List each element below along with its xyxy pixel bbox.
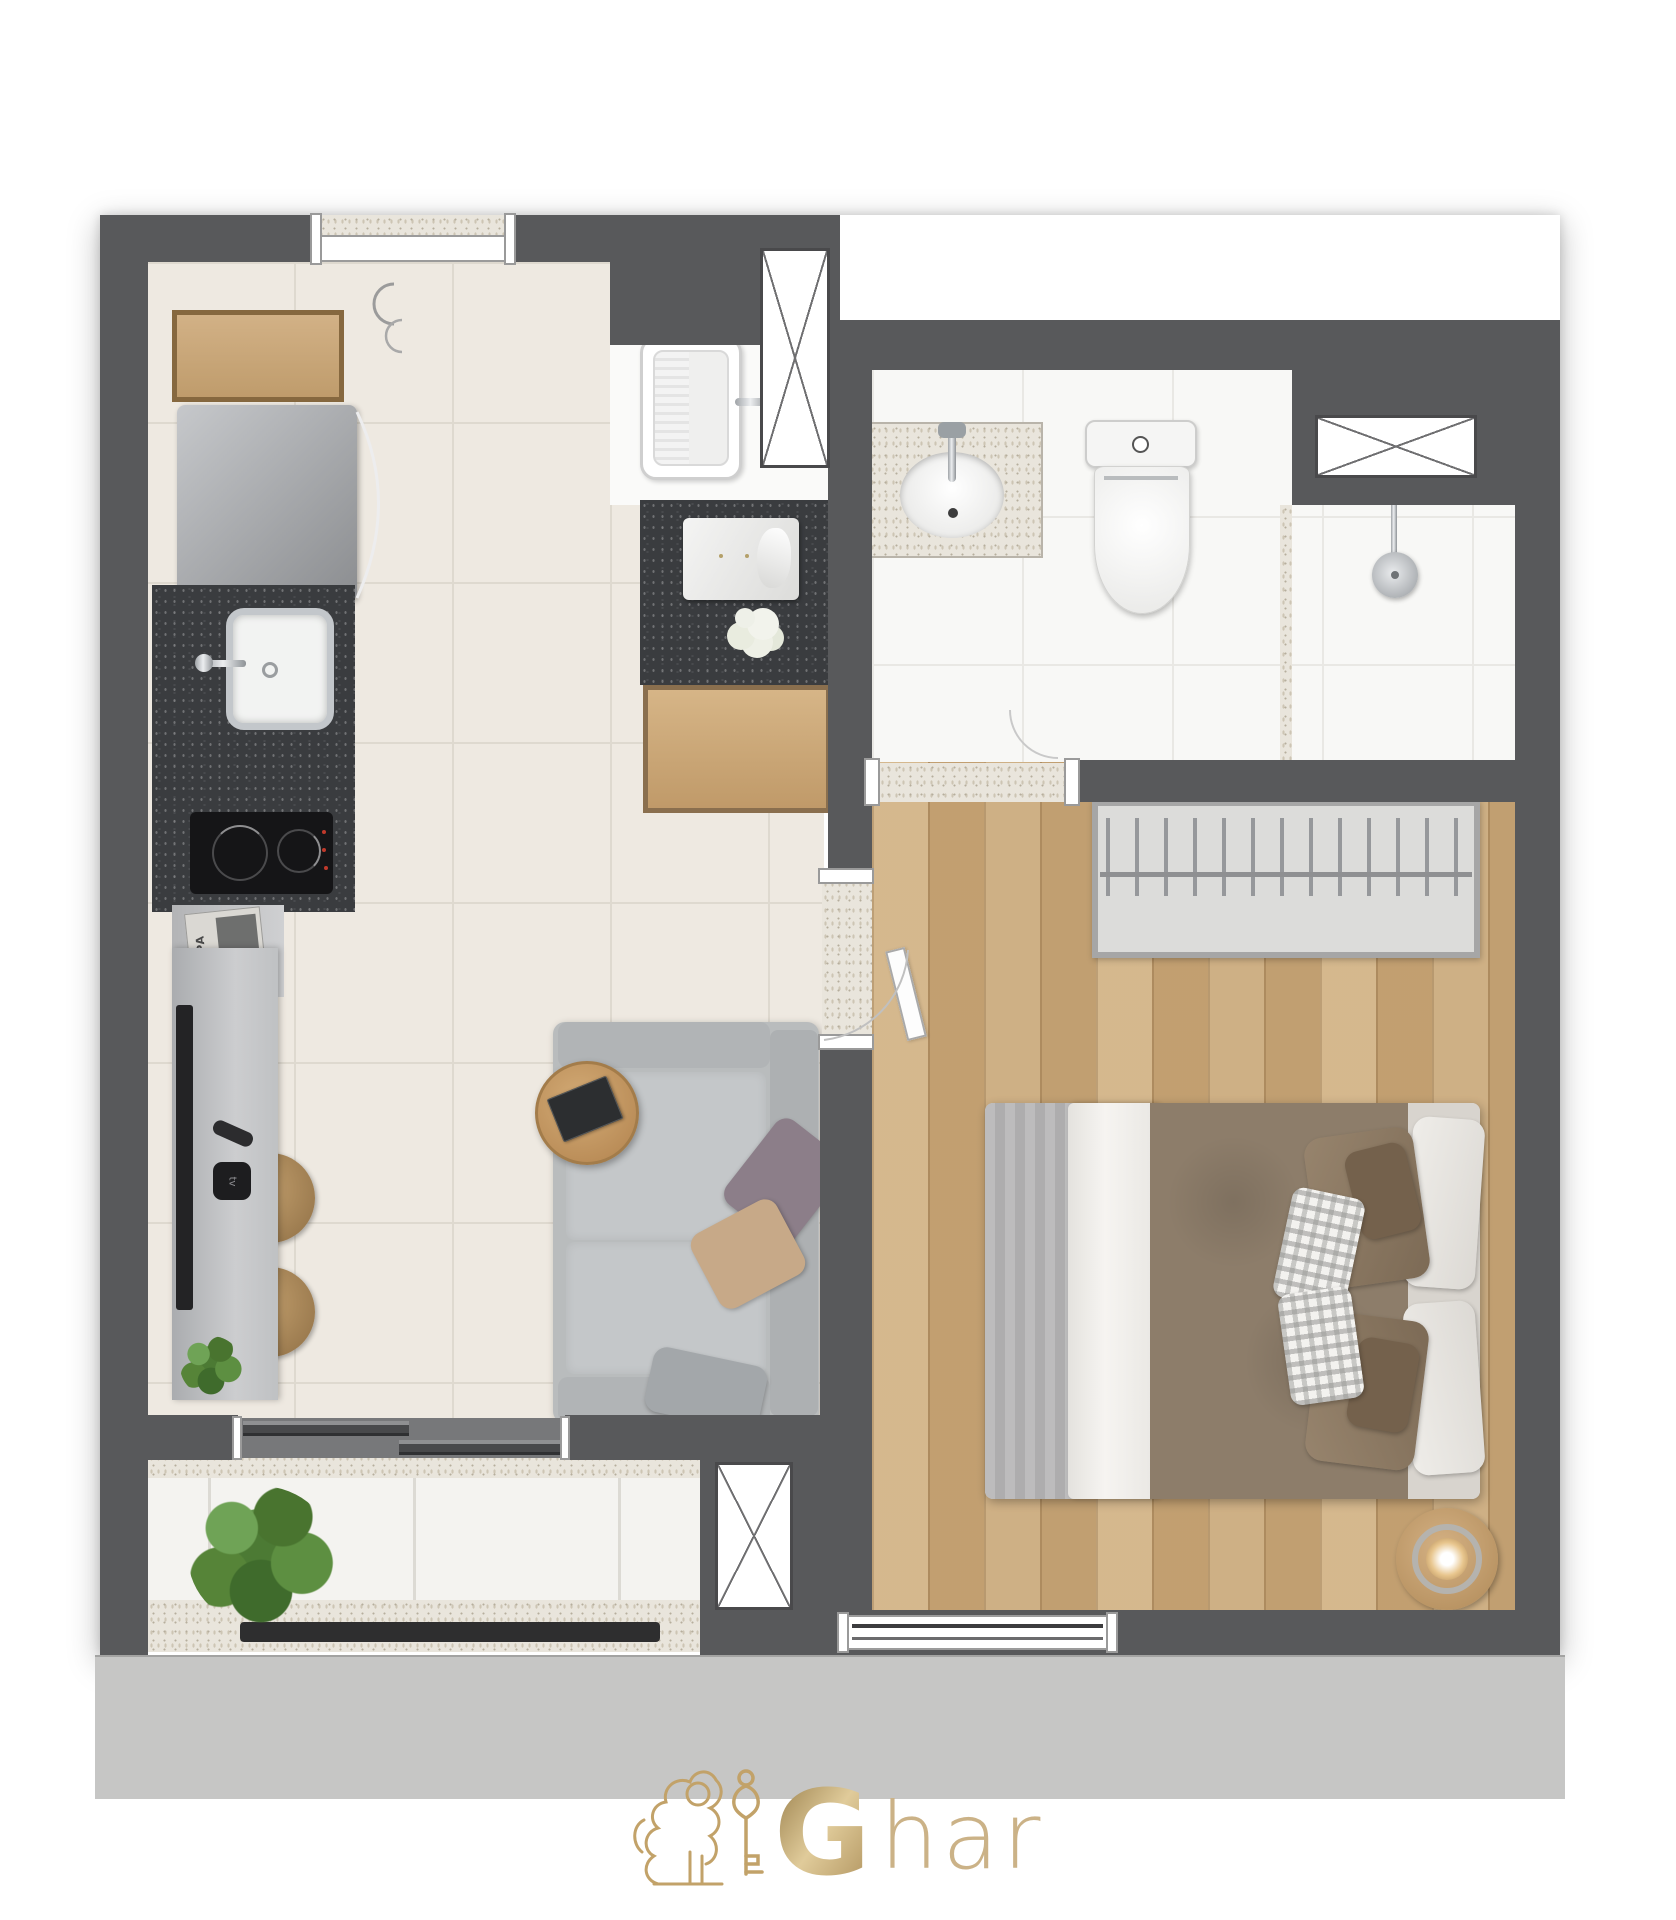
shower-head-center	[1391, 571, 1399, 579]
wardrobe-hangers	[1106, 818, 1468, 896]
shower-divider	[1280, 505, 1292, 762]
kitchen-window	[318, 235, 508, 262]
bedroom-window-jamb-right	[1106, 1612, 1118, 1653]
refrigerator	[177, 405, 357, 601]
bed-blanket-gray	[985, 1103, 1077, 1499]
folded-shirt	[683, 518, 799, 600]
logo-letters-har: har	[880, 1783, 1045, 1890]
balcony-slider-panel-1	[243, 1421, 409, 1436]
toilet-bowl	[1094, 466, 1190, 614]
bathroom-door-jamb-left	[864, 758, 880, 806]
balcony-slider-jamb-left	[232, 1416, 242, 1460]
wall-bathroom-top	[840, 320, 1560, 370]
bedroom-door-jamb-top	[818, 868, 874, 884]
floor-plan-canvas: SCARPA tv	[0, 0, 1676, 1920]
wall-living-bedroom	[820, 1040, 872, 1418]
cooktop-burner-small	[277, 829, 321, 873]
balcony-slider-panel-2	[399, 1440, 561, 1455]
toilet-flush-button	[1132, 436, 1149, 453]
vanity-drain	[948, 508, 958, 518]
kitchen-window-sill	[318, 215, 508, 235]
wall-bottom	[700, 1610, 1560, 1655]
service-wood-cabinet	[643, 685, 831, 813]
kitchen-window-jamb-right	[504, 213, 516, 265]
balcony-slider-jamb-right	[560, 1416, 570, 1460]
media-player-label: tv	[227, 1176, 238, 1186]
balcony-drain-slot	[240, 1622, 660, 1642]
flowers	[735, 608, 755, 628]
wardrobe-rail	[1100, 872, 1472, 877]
wall-balcony-left	[148, 1415, 238, 1460]
bathroom-door-jamb-right	[1064, 758, 1080, 806]
shirt-collar	[757, 528, 791, 588]
key-icon	[734, 1771, 762, 1874]
shirt-buttons	[719, 554, 723, 558]
bedroom-door-jamb-bottom	[818, 1034, 874, 1050]
toilet-seat-hinge	[1104, 476, 1178, 480]
bathroom-door-threshold	[872, 763, 1080, 802]
laundry-tub-basin	[653, 350, 729, 466]
bedroom-window-glass-2	[852, 1637, 1103, 1640]
kitchen-faucet-base	[195, 654, 213, 672]
vanity-faucet-base	[938, 422, 966, 438]
brand-logo: G har	[598, 1756, 1078, 1916]
bedroom-window	[845, 1615, 1110, 1650]
balcony-plant	[188, 1486, 334, 1626]
lamp-glow	[1426, 1538, 1468, 1580]
wall-right	[1515, 320, 1560, 1655]
bed-sheet-fold	[1068, 1103, 1160, 1499]
cooktop-burner-large	[212, 825, 268, 881]
wall-left	[100, 215, 148, 1655]
bedroom-door-threshold	[822, 878, 872, 1040]
wall-balcony-right	[565, 1415, 872, 1460]
logo-letter-g: G	[774, 1764, 871, 1902]
laundry-tub	[640, 337, 742, 480]
bedroom-window-glass-1	[852, 1624, 1103, 1628]
ventilation-shaft-bottom	[715, 1462, 793, 1610]
sideboard-plant	[180, 1336, 242, 1396]
media-player: tv	[213, 1162, 251, 1200]
bedroom-window-jamb-left	[837, 1612, 849, 1653]
ventilation-shaft-bathroom	[1315, 415, 1477, 478]
upper-wood-cabinet	[172, 310, 344, 402]
kitchen-sink	[226, 608, 334, 730]
wall-bath-bedroom	[1080, 760, 1515, 802]
sink-drain	[262, 662, 278, 678]
lion-icon	[635, 1772, 722, 1884]
pillow-pattern-2	[1277, 1285, 1366, 1406]
brand-logo-graphic: G har	[598, 1756, 1078, 1916]
kitchen-window-jamb-left	[310, 213, 322, 265]
living-tv	[176, 1005, 193, 1310]
cooktop-indicator-lights	[322, 830, 326, 834]
ventilation-shaft-kitchen	[760, 248, 830, 468]
